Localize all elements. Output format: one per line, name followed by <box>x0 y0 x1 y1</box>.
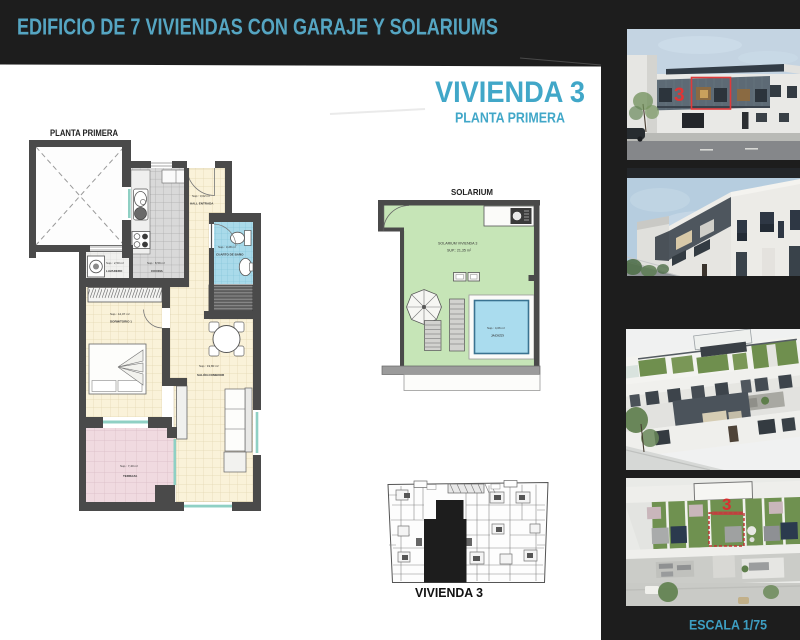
svg-text:DORMITORIO 1: DORMITORIO 1 <box>110 320 132 324</box>
svg-text:HALL ENTRADA: HALL ENTRADA <box>190 202 214 206</box>
svg-text:Sup.: 7,40 m²: Sup.: 7,40 m² <box>120 464 138 468</box>
svg-text:Sup.: 2,50 m²: Sup.: 2,50 m² <box>106 261 124 265</box>
svg-text:Sup.: 3,28 m²: Sup.: 3,28 m² <box>218 245 236 249</box>
svg-text:Sup.: 19,80 m²: Sup.: 19,80 m² <box>199 364 219 368</box>
svg-text:SOLARIUM VIVIENDA 3: SOLARIUM VIVIENDA 3 <box>438 242 477 246</box>
svg-text:PLANTA PRIMERA: PLANTA PRIMERA <box>50 128 118 138</box>
svg-text:COCINA: COCINA <box>151 269 164 273</box>
svg-text:ESCALA 1/75: ESCALA 1/75 <box>689 618 767 633</box>
svg-text:JACUZZI: JACUZZI <box>491 334 504 338</box>
svg-text:3: 3 <box>674 85 685 106</box>
svg-text:Sup.: 8,59 m²: Sup.: 8,59 m² <box>147 261 165 265</box>
svg-text:Sup.: 12,07 m²: Sup.: 12,07 m² <box>110 312 130 316</box>
svg-text:SUP.: 21,35 m²: SUP.: 21,35 m² <box>447 249 472 253</box>
svg-text:Sup.: 3,02 m²: Sup.: 3,02 m² <box>192 194 210 198</box>
svg-text:Sup.: 4,06 m²: Sup.: 4,06 m² <box>487 326 505 330</box>
svg-text:LAVADERO: LAVADERO <box>106 269 123 273</box>
svg-text:SALÓN-COMEDOR: SALÓN-COMEDOR <box>197 372 225 377</box>
svg-text:VIVIENDA 3: VIVIENDA 3 <box>415 585 483 600</box>
svg-text:VIVIENDA 3: VIVIENDA 3 <box>435 76 585 109</box>
svg-text:PLANTA PRIMERA: PLANTA PRIMERA <box>455 111 565 127</box>
svg-text:CUARTO DE BAÑO: CUARTO DE BAÑO <box>216 252 244 257</box>
svg-text:3: 3 <box>722 495 731 514</box>
svg-text:EDIFICIO DE 7 VIVIENDAS CON GA: EDIFICIO DE 7 VIVIENDAS CON GARAJE Y SOL… <box>17 14 498 40</box>
svg-text:SOLARIUM: SOLARIUM <box>451 187 493 197</box>
svg-text:TERRAZA: TERRAZA <box>123 474 138 478</box>
